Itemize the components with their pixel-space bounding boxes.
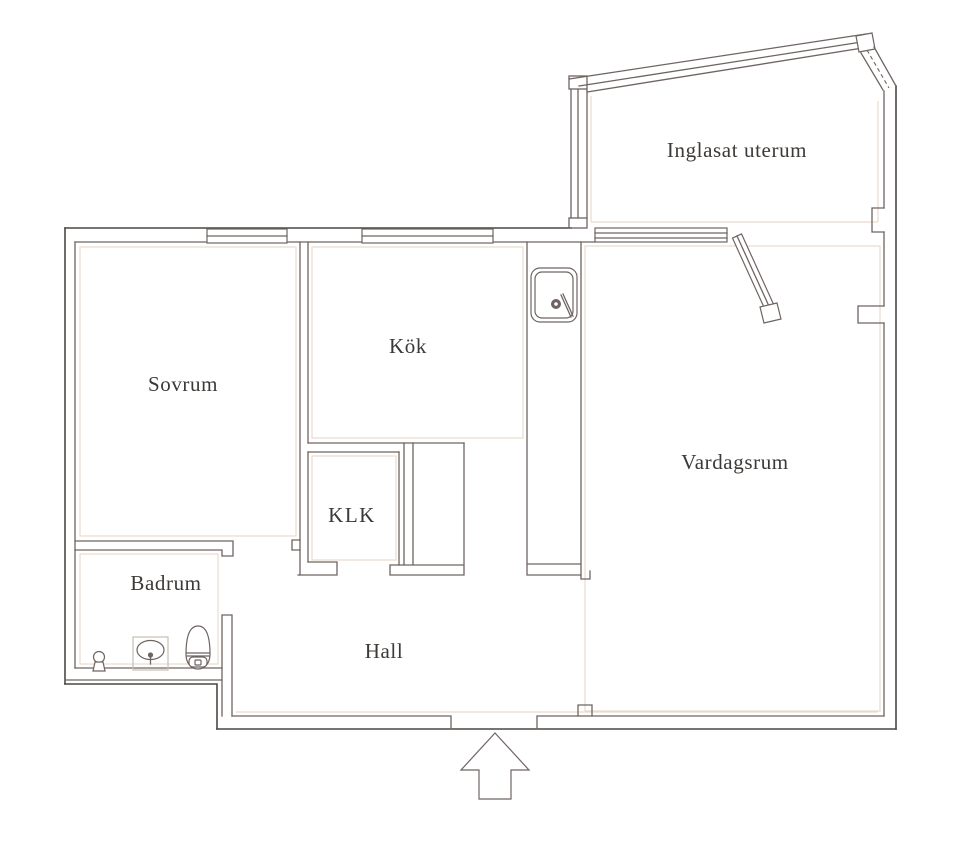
klk-bottom-stub [298,562,337,575]
facade-windows [207,229,493,243]
open-door-endcap [760,303,781,323]
wardrobe-block [390,443,464,575]
kitchen-sink-icon [531,268,577,322]
uterum-post-topright [856,33,875,52]
conservatory-walls [569,33,896,228]
bathroom-sink-icon [133,637,168,670]
sovrum-door-jamb [292,540,300,550]
uterum-post-bottomleft [569,218,587,228]
label-inglasat-uterum: Inglasat uterum [667,138,807,162]
balcony-door [595,228,781,323]
label-klk: KLK [328,503,376,527]
floorplan-drawing: Inglasat uterum Sovrum Kök KLK Vardagsru… [0,0,954,842]
kok-bottom-wall [308,443,464,452]
label-badrum: Badrum [130,571,201,595]
accent-inner-lines [80,96,880,712]
floorplan-canvas: Inglasat uterum Sovrum Kök KLK Vardagsru… [0,0,954,842]
label-kok: Kök [389,334,427,358]
hall-bottom-wall [232,716,884,729]
sovrum-window [207,229,287,243]
vardagsrum-inner-line [585,246,880,711]
open-door-leaf-line [737,236,773,315]
toilet-icon [186,626,210,669]
label-sovrum: Sovrum [148,372,218,396]
uterum-left-window-wall [571,90,587,218]
badrum-right-wall [222,615,232,716]
uterum-corner-window-wall [861,47,896,90]
uterum-top-window-wall [569,34,869,92]
sovrum-kok-partition [300,242,308,575]
label-hall: Hall [365,639,404,663]
entrance-arrow-icon [461,733,529,799]
bottom-left-wall-outer [65,684,217,729]
glass-door-frame [595,228,727,242]
sink-basin [535,272,573,318]
room-labels: Inglasat uterum Sovrum Kök KLK Vardagsru… [130,138,807,663]
shower-valve-icon [93,652,105,672]
label-vardagsrum: Vardagsrum [681,450,788,474]
klk-right-wall [399,443,404,565]
kok-window [362,229,493,243]
sink-tap-center [554,302,558,306]
